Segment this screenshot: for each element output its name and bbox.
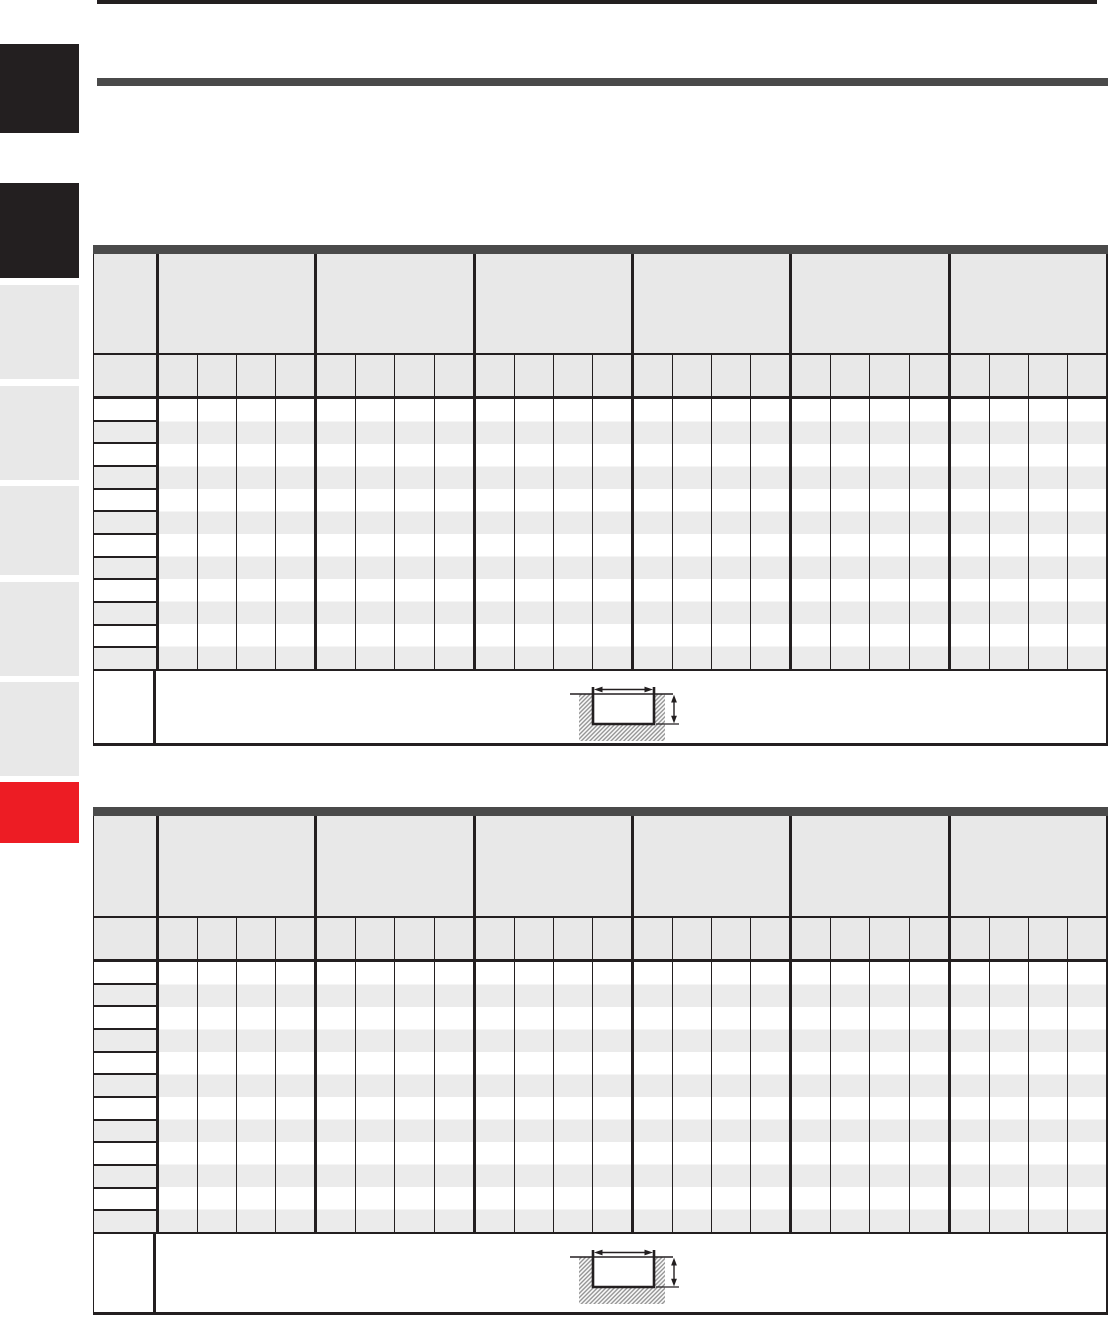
- column-subgroup: [631, 918, 789, 959]
- row-label-cell: [94, 1030, 156, 1053]
- body-column-group: [156, 399, 314, 669]
- column-subheader-cell: [830, 355, 869, 396]
- body-column: [275, 962, 314, 1232]
- body-column-group: [473, 962, 631, 1232]
- table-grid: [93, 816, 1108, 1315]
- document-page: [0, 0, 1108, 1321]
- footer-label-cell: [94, 671, 156, 743]
- row-label-cell: [94, 399, 156, 422]
- column-group-header-cell: [789, 254, 947, 353]
- table-footer-row: [94, 1232, 1106, 1315]
- body-column: [750, 962, 789, 1232]
- column-group-header-cell: [789, 816, 947, 916]
- column-subheader-cell: [1028, 355, 1067, 396]
- body-column: [553, 399, 592, 669]
- row-label-header-cell: [94, 816, 156, 916]
- row-label-cell: [94, 985, 156, 1008]
- body-column: [355, 962, 394, 1232]
- body-column: [514, 399, 553, 669]
- column-subheader-cell: [355, 918, 394, 959]
- column-subheader-row: [94, 918, 1106, 962]
- row-label-cell: [94, 1007, 156, 1030]
- row-label-column: [94, 962, 156, 1232]
- body-column: [476, 399, 514, 669]
- column-subheader-cell: [394, 355, 433, 396]
- column-subheader-cell: [553, 918, 592, 959]
- column-group-header-cell: [948, 816, 1106, 916]
- row-label-cell: [94, 1211, 156, 1232]
- body-column: [1028, 962, 1067, 1232]
- body-column: [514, 962, 553, 1232]
- sidebar-index-tab-7: [0, 682, 79, 776]
- body-column: [236, 962, 275, 1232]
- column-subheader-cell: [1067, 355, 1106, 396]
- column-subheader-cell: [434, 918, 473, 959]
- body-column: [830, 962, 869, 1232]
- row-label-cell: [94, 603, 156, 626]
- row-label-cell: [94, 1166, 156, 1189]
- body-column: [869, 399, 908, 669]
- table-grid: [93, 254, 1108, 746]
- sidebar-index-tab-1: [0, 44, 79, 133]
- body-column-group: [156, 962, 314, 1232]
- table-title-bar: [93, 807, 1108, 816]
- column-group-header-cell: [314, 254, 472, 353]
- column-group-header-cell: [473, 254, 631, 353]
- body-column-group: [631, 962, 789, 1232]
- table-title-bar: [93, 245, 1108, 254]
- column-subheader-cell: [634, 355, 672, 396]
- column-subgroup: [156, 355, 314, 396]
- body-column: [951, 399, 989, 669]
- column-subheader-cell: [634, 918, 672, 959]
- column-subheader-cell: [476, 918, 514, 959]
- body-column: [1028, 399, 1067, 669]
- column-subgroup: [473, 918, 631, 959]
- groove-cross-section-diagram: [569, 1247, 681, 1305]
- body-column: [830, 399, 869, 669]
- row-label-cell: [94, 558, 156, 581]
- table-body: [94, 399, 1106, 669]
- body-column: [476, 962, 514, 1232]
- column-subheader-cell: [355, 355, 394, 396]
- body-column: [869, 962, 908, 1232]
- column-subgroup: [789, 355, 947, 396]
- column-subheader-cell: [951, 918, 989, 959]
- row-label-cell: [94, 1189, 156, 1212]
- column-subheader-cell: [989, 355, 1028, 396]
- column-subheader-cell: [951, 355, 989, 396]
- column-group-header-cell: [156, 254, 314, 353]
- row-label-cell: [94, 490, 156, 513]
- body-column: [909, 962, 948, 1232]
- column-subheader-cell: [159, 918, 197, 959]
- footer-label-cell: [94, 1234, 156, 1312]
- body-column: [275, 399, 314, 669]
- body-column: [792, 962, 830, 1232]
- body-column-group: [948, 962, 1106, 1232]
- column-subheader-cell: [476, 355, 514, 396]
- column-subheader-cell: [275, 355, 314, 396]
- column-subheader-cell: [989, 918, 1028, 959]
- row-label-subheader-cell: [94, 355, 156, 396]
- column-subheader-cell: [317, 918, 355, 959]
- column-subheader-cell: [434, 355, 473, 396]
- column-subheader-cell: [317, 355, 355, 396]
- column-subheader-cell: [394, 918, 433, 959]
- sidebar-index-tab-5: [0, 486, 79, 575]
- column-group-header-cell: [631, 254, 789, 353]
- column-subheader-cell: [514, 918, 553, 959]
- row-label-header-cell: [94, 254, 156, 353]
- column-group-header-row: [94, 254, 1106, 355]
- column-group-header-cell: [948, 254, 1106, 353]
- column-subheader-cell: [909, 918, 948, 959]
- column-subgroup: [631, 355, 789, 396]
- sidebar-index-tab-2: [0, 183, 79, 278]
- column-subheader-cell: [553, 355, 592, 396]
- body-column: [792, 399, 830, 669]
- column-subheader-cell: [1067, 918, 1106, 959]
- row-label-subheader-cell: [94, 918, 156, 959]
- body-column-group: [789, 399, 947, 669]
- body-column: [159, 962, 197, 1232]
- row-label-cell: [94, 422, 156, 445]
- width-dimension-arrow: [594, 1250, 653, 1256]
- row-label-cell: [94, 1098, 156, 1121]
- body-column: [159, 399, 197, 669]
- column-subgroup: [948, 355, 1106, 396]
- sidebar-index-tab-8-current-section: [0, 782, 79, 843]
- body-column: [634, 399, 672, 669]
- width-dimension-arrow: [594, 687, 653, 693]
- sidebar-index-tab-6: [0, 582, 79, 676]
- column-subheader-cell: [711, 355, 750, 396]
- row-label-cell: [94, 467, 156, 490]
- row-label-cell: [94, 580, 156, 603]
- column-subheader-row: [94, 355, 1106, 399]
- body-column: [236, 399, 275, 669]
- column-subgroup: [473, 355, 631, 396]
- section-heading-rule: [97, 78, 1108, 86]
- upper-dimension-table: [93, 245, 1108, 746]
- column-subheader-cell: [869, 355, 908, 396]
- body-column: [355, 399, 394, 669]
- column-subheader-cell: [830, 918, 869, 959]
- row-label-cell: [94, 1075, 156, 1098]
- column-subheader-cell: [197, 918, 236, 959]
- body-column: [672, 399, 711, 669]
- body-column: [553, 962, 592, 1232]
- body-column: [317, 962, 355, 1232]
- body-column-group: [948, 399, 1106, 669]
- column-subheader-cell: [275, 918, 314, 959]
- column-subheader-cell: [792, 355, 830, 396]
- body-column: [951, 962, 989, 1232]
- body-column: [394, 399, 433, 669]
- sidebar-index-tab-3: [0, 285, 79, 379]
- column-subheader-cell: [197, 355, 236, 396]
- column-subheader-cell: [1028, 918, 1067, 959]
- body-column: [711, 962, 750, 1232]
- column-subgroup: [948, 918, 1106, 959]
- body-column: [592, 399, 631, 669]
- row-label-cell: [94, 512, 156, 535]
- column-subheader-cell: [592, 918, 631, 959]
- row-label-cell: [94, 535, 156, 558]
- column-subheader-cell: [869, 918, 908, 959]
- column-subheader-cell: [909, 355, 948, 396]
- body-column: [750, 399, 789, 669]
- body-column: [317, 399, 355, 669]
- row-label-cell: [94, 626, 156, 649]
- row-label-cell: [94, 1143, 156, 1166]
- body-column-group: [314, 399, 472, 669]
- row-label-cell: [94, 648, 156, 669]
- groove-notch: [593, 687, 654, 724]
- column-subheader-cell: [236, 355, 275, 396]
- body-column-group: [631, 399, 789, 669]
- column-subheader-cell: [236, 918, 275, 959]
- body-column: [909, 399, 948, 669]
- body-column: [434, 399, 473, 669]
- body-column: [197, 399, 236, 669]
- body-column: [434, 962, 473, 1232]
- table-footer-row: [94, 669, 1106, 746]
- column-group-header-cell: [156, 816, 314, 916]
- body-column: [1067, 962, 1106, 1232]
- column-group-header-cell: [631, 816, 789, 916]
- groove-notch: [593, 1250, 654, 1287]
- row-label-column: [94, 399, 156, 669]
- body-column: [634, 962, 672, 1232]
- body-column: [1067, 399, 1106, 669]
- column-subheader-cell: [672, 918, 711, 959]
- top-rule: [97, 0, 1097, 4]
- lower-dimension-table: [93, 807, 1108, 1315]
- column-subheader-cell: [159, 355, 197, 396]
- column-subheader-cell: [792, 918, 830, 959]
- column-group-header-row: [94, 816, 1106, 918]
- body-column: [394, 962, 433, 1232]
- body-column: [197, 962, 236, 1232]
- sidebar-index-tab-4: [0, 386, 79, 480]
- row-label-cell: [94, 444, 156, 467]
- groove-cross-section-diagram: [569, 684, 681, 742]
- column-subgroup: [314, 355, 472, 396]
- row-label-cell: [94, 962, 156, 985]
- row-label-cell: [94, 1053, 156, 1076]
- row-label-cell: [94, 1121, 156, 1144]
- body-column: [711, 399, 750, 669]
- column-subheader-cell: [711, 918, 750, 959]
- column-subgroup: [789, 918, 947, 959]
- column-subheader-cell: [750, 355, 789, 396]
- column-subgroup: [156, 918, 314, 959]
- column-subheader-cell: [750, 918, 789, 959]
- column-group-header-cell: [473, 816, 631, 916]
- body-column: [592, 962, 631, 1232]
- column-subheader-cell: [514, 355, 553, 396]
- body-column-group: [473, 399, 631, 669]
- column-subheader-cell: [592, 355, 631, 396]
- body-column-group: [314, 962, 472, 1232]
- column-subheader-cell: [672, 355, 711, 396]
- body-column: [989, 962, 1028, 1232]
- column-group-header-cell: [314, 816, 472, 916]
- body-column-group: [789, 962, 947, 1232]
- body-column: [989, 399, 1028, 669]
- table-body: [94, 962, 1106, 1232]
- column-subgroup: [314, 918, 472, 959]
- body-column: [672, 962, 711, 1232]
